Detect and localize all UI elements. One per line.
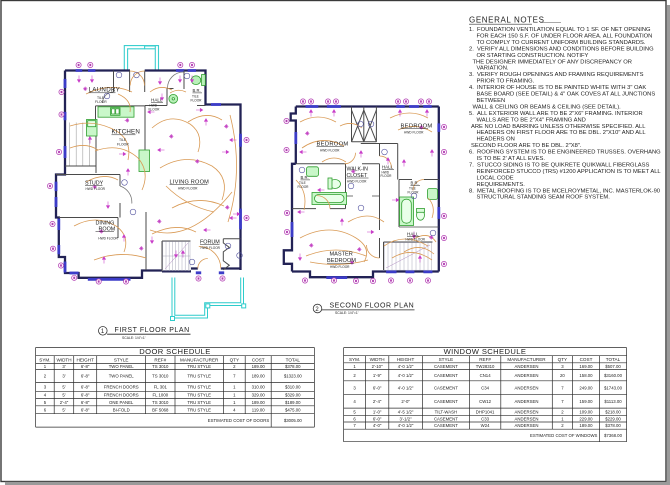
- svg-text:HWD FLOOR: HWD FLOOR: [320, 148, 340, 152]
- svg-text:REQUIREMENTS.: REQUIREMENTS.: [477, 182, 526, 188]
- svg-text:CASEMENT: CASEMENT: [434, 423, 458, 428]
- svg-text:ANDERSEN: ANDERSEN: [515, 364, 539, 369]
- svg-text:2'-4": 2'-4": [373, 399, 382, 404]
- svg-text:FL 301: FL 301: [154, 385, 168, 390]
- svg-text:TO COMPLY TO CURRENT UNIFORM B: TO COMPLY TO CURRENT UNIFORM BUILDING ST…: [477, 40, 646, 46]
- svg-text:WALLS ARE TO BE 2"X4" FRAMING: WALLS ARE TO BE 2"X4" FRAMING AND: [477, 117, 586, 123]
- svg-text:158.00: 158.00: [579, 373, 593, 378]
- svg-text:SYM.: SYM.: [39, 357, 50, 362]
- svg-text:DOOR SCHEDULE: DOOR SCHEDULE: [139, 347, 210, 356]
- svg-text:B.R.: B.R.: [411, 181, 419, 186]
- svg-text:HWD FLOOR: HWD FLOOR: [98, 237, 118, 241]
- svg-text:$1113.00: $1113.00: [604, 399, 622, 404]
- svg-text:KITCHEN: KITCHEN: [112, 129, 141, 136]
- svg-text:3'-1/2": 3'-1/2": [400, 417, 413, 422]
- svg-text:CN14: CN14: [480, 373, 492, 378]
- svg-text:20: 20: [560, 373, 565, 378]
- svg-text:310.00: 310.00: [252, 385, 266, 390]
- svg-text:HWD FLOOR: HWD FLOOR: [406, 238, 426, 242]
- svg-text:3. VERIFY ROUGH OPENINGS AND: 3. VERIFY ROUGH OPENINGS AND FRAMING REQ…: [469, 72, 644, 78]
- svg-text:HALL: HALL: [407, 232, 419, 237]
- svg-text:FRENCH DOORS: FRENCH DOORS: [104, 385, 139, 390]
- svg-text:W24: W24: [481, 423, 490, 428]
- svg-text:2'-0": 2'-0": [401, 399, 410, 404]
- svg-text:HEIGHT: HEIGHT: [77, 357, 95, 362]
- svg-text:REF#: REF#: [154, 357, 166, 362]
- svg-text:WINDOW SCHEDULE: WINDOW SCHEDULE: [444, 347, 527, 356]
- svg-text:IS TO BE 2' AT ALL EVES.: IS TO BE 2' AT ALL EVES.: [477, 156, 546, 162]
- svg-text:7. STUCCO SIDING IS TO BE QUI: 7. STUCCO SIDING IS TO BE QUIKRETE QUIKW…: [469, 162, 650, 168]
- svg-text:TILT-WASH: TILT-WASH: [435, 410, 457, 415]
- svg-text:TW28310: TW28310: [476, 364, 495, 369]
- svg-text:TILE: TILE: [119, 138, 127, 142]
- svg-text:$475.00: $475.00: [285, 407, 301, 412]
- svg-text:6'-8": 6'-8": [81, 407, 90, 412]
- svg-text:5. ALL EXTERIOR WALL ARE TO B: 5. ALL EXTERIOR WALL ARE TO BE 2"X6" FRA…: [469, 111, 643, 117]
- svg-text:BETWEEN: BETWEEN: [477, 98, 506, 104]
- svg-text:HWD FLOOR: HWD FLOOR: [404, 130, 424, 134]
- svg-text:LOCAL CODE: LOCAL CODE: [477, 175, 514, 181]
- svg-text:PRIOR TO FRAMING.: PRIOR TO FRAMING.: [477, 79, 535, 85]
- svg-text:6'-8": 6'-8": [81, 393, 90, 398]
- svg-text:TS 3010: TS 3010: [152, 400, 169, 405]
- svg-text:LAUNDRY: LAUNDRY: [89, 87, 121, 94]
- svg-text:109.00: 109.00: [579, 410, 593, 415]
- svg-text:THE DESIGNER IMMEDIATELY OF AN: THE DESIGNER IMMEDIATELY OF ANY DISCREPA…: [473, 59, 632, 65]
- svg-text:SECOND FLOOR ARE TO BE DBL. 2": SECOND FLOOR ARE TO BE DBL. 2"X8".: [471, 143, 582, 149]
- svg-text:TOTAL: TOTAL: [286, 357, 301, 362]
- svg-text:TRU STYLE: TRU STYLE: [187, 374, 211, 379]
- svg-text:VARIATION.: VARIATION.: [477, 66, 509, 72]
- svg-text:$378.00: $378.00: [285, 364, 301, 369]
- svg-text:HWD FLOOR: HWD FLOOR: [330, 265, 350, 269]
- svg-text:HEADERS ON: HEADERS ON: [477, 137, 515, 143]
- svg-text:FIRST FLOOR PLAN: FIRST FLOOR PLAN: [115, 327, 190, 334]
- svg-text:TRU STYLE: TRU STYLE: [187, 400, 211, 405]
- svg-text:WIDTH: WIDTH: [56, 357, 71, 362]
- svg-text:BASE BOARD (SEE DETAIL) & 4" O: BASE BOARD (SEE DETAIL) & 4" OAK COVES A…: [477, 92, 656, 98]
- svg-text:6. ROOFING SYSTEM IS TO BE EN: 6. ROOFING SYSTEM IS TO BE ENGINEERED TR…: [469, 150, 661, 156]
- svg-text:TS 3010: TS 3010: [152, 374, 169, 379]
- svg-text:4'-0 1/2": 4'-0 1/2": [398, 373, 414, 378]
- svg-text:TRU STYLE: TRU STYLE: [187, 407, 211, 412]
- svg-text:FLOOR: FLOOR: [117, 143, 129, 147]
- svg-text:FLOOR: FLOOR: [298, 185, 310, 189]
- svg-text:3': 3': [62, 364, 65, 369]
- svg-text:329.00: 329.00: [252, 393, 266, 398]
- svg-text:BF 5068: BF 5068: [152, 407, 169, 412]
- svg-text:6'-0": 6'-0": [373, 417, 382, 422]
- svg-text:HEIGHT: HEIGHT: [397, 357, 415, 362]
- svg-text:169.00: 169.00: [579, 364, 593, 369]
- svg-text:ANDERSEN: ANDERSEN: [515, 399, 539, 404]
- svg-text:TS 3010: TS 3010: [152, 364, 169, 369]
- svg-text:$310.00: $310.00: [285, 385, 301, 390]
- svg-text:TRU STYLE: TRU STYLE: [187, 393, 211, 398]
- svg-text:ANDERSEN: ANDERSEN: [515, 410, 539, 415]
- svg-text:FL 1000: FL 1000: [152, 393, 168, 398]
- svg-text:HALL: HALL: [151, 98, 163, 103]
- svg-text:$378.00: $378.00: [605, 423, 621, 428]
- svg-text:FRENCH DOORS: FRENCH DOORS: [104, 393, 139, 398]
- svg-text:CW12: CW12: [479, 399, 492, 404]
- svg-text:WALK-IN: WALK-IN: [347, 167, 369, 173]
- svg-text:ANDERSEN: ANDERSEN: [515, 385, 539, 390]
- svg-text:2. VERIFY ALL DIMENSIONS AND: 2. VERIFY ALL DIMENSIONS AND CONDITIONS …: [469, 46, 654, 52]
- svg-text:CASEMENT: CASEMENT: [434, 417, 458, 422]
- svg-text:STYLE: STYLE: [439, 357, 454, 362]
- svg-text:1. FOUNDATION VENTILATION EQU: 1. FOUNDATION VENTILATION EQUAL TO 1 SF.…: [469, 27, 651, 33]
- svg-text:$7368.00: $7368.00: [604, 433, 623, 438]
- svg-text:5': 5': [62, 385, 65, 390]
- svg-text:$229.00: $229.00: [605, 417, 621, 422]
- svg-text:6'-8": 6'-8": [81, 364, 90, 369]
- svg-text:QTY: QTY: [558, 357, 567, 362]
- svg-text:SCALE: 1/4"=1': SCALE: 1/4"=1': [122, 336, 146, 340]
- svg-text:B.R.: B.R.: [193, 88, 201, 93]
- svg-text:FLOOR: FLOOR: [191, 99, 203, 103]
- svg-text:6'-8": 6'-8": [81, 385, 90, 390]
- svg-text:$3160.00: $3160.00: [604, 373, 623, 378]
- svg-text:GENERAL NOTES: GENERAL NOTES: [469, 16, 545, 25]
- svg-text:$507.00: $507.00: [605, 364, 621, 369]
- svg-text:4'-5 1/2": 4'-5 1/2": [398, 410, 414, 415]
- svg-text:4. INTERIOR OF HOUSE IS TO BE: 4. INTERIOR OF HOUSE IS TO BE PAINTED WH…: [469, 85, 646, 91]
- svg-text:4'-0": 4'-0": [373, 423, 382, 428]
- svg-text:FLOOR: FLOOR: [149, 107, 161, 111]
- svg-text:REINFORCED STUCCO (TRS) #1200: REINFORCED STUCCO (TRS) #1200 APPLICATIO…: [477, 169, 662, 175]
- svg-text:8. METAL ROOFING IS TO BE MCE: 8. METAL ROOFING IS TO BE MCELROYMETAL, …: [469, 188, 660, 194]
- svg-text:CASEMENT: CASEMENT: [434, 399, 458, 404]
- svg-text:CASEMENT: CASEMENT: [434, 364, 458, 369]
- svg-text:STYLE: STYLE: [114, 357, 129, 362]
- svg-text:FLOOR: FLOOR: [381, 174, 393, 178]
- svg-text:6'-8": 6'-8": [81, 400, 90, 405]
- svg-text:4'-0 1/2": 4'-0 1/2": [398, 423, 414, 428]
- svg-text:HWD FLOOR: HWD FLOOR: [201, 246, 221, 250]
- svg-text:HWD FLOOR: HWD FLOOR: [86, 187, 106, 191]
- svg-text:6'-8": 6'-8": [81, 374, 90, 379]
- svg-text:ANDERSEN: ANDERSEN: [515, 423, 539, 428]
- svg-text:TWO PANEL: TWO PANEL: [109, 374, 135, 379]
- svg-text:ANDERSEN: ANDERSEN: [515, 373, 539, 378]
- svg-text:HALL: HALL: [382, 165, 394, 170]
- svg-text:SCALE: 1/4"=1': SCALE: 1/4"=1': [335, 311, 359, 315]
- svg-text:3': 3': [62, 374, 65, 379]
- svg-text:COST: COST: [252, 357, 265, 362]
- svg-text:HWD FLOOR: HWD FLOOR: [347, 179, 367, 183]
- svg-text:SECOND FLOOR PLAN: SECOND FLOOR PLAN: [330, 302, 415, 309]
- svg-text:159.00: 159.00: [579, 399, 593, 404]
- svg-text:229.00: 229.00: [579, 417, 593, 422]
- svg-text:189.00: 189.00: [252, 374, 266, 379]
- svg-text:$3005.00: $3005.00: [284, 418, 303, 423]
- svg-text:TRU STYLE: TRU STYLE: [187, 364, 211, 369]
- svg-text:FLOOR: FLOOR: [408, 191, 420, 195]
- svg-text:HWD FLOOR: HWD FLOOR: [178, 186, 198, 190]
- svg-text:249.00: 249.00: [579, 385, 593, 390]
- svg-text:4'-0 1/2": 4'-0 1/2": [398, 385, 414, 390]
- svg-text:C34: C34: [481, 385, 489, 390]
- svg-text:4'-0 1/2": 4'-0 1/2": [398, 364, 414, 369]
- svg-text:WIDTH: WIDTH: [370, 357, 385, 362]
- svg-text:REF#: REF#: [479, 357, 491, 362]
- svg-text:TOTAL: TOTAL: [606, 357, 621, 362]
- svg-text:FOR EACH 150 S.F. OF UNDER FLO: FOR EACH 150 S.F. OF UNDER FLOOR AREA. A…: [477, 33, 653, 39]
- svg-text:$329.00: $329.00: [285, 393, 301, 398]
- svg-text:ANDERSEN: ANDERSEN: [515, 417, 539, 422]
- svg-text:ONE PANEL: ONE PANEL: [109, 400, 134, 405]
- svg-text:MASTER: MASTER: [330, 252, 353, 258]
- svg-text:C33: C33: [481, 417, 489, 422]
- svg-text:5': 5': [62, 407, 65, 412]
- svg-text:2'-4": 2'-4": [60, 400, 69, 405]
- svg-text:B.R.: B.R.: [301, 175, 309, 180]
- svg-text:2'-10": 2'-10": [372, 364, 383, 369]
- svg-text:$218.00: $218.00: [605, 410, 621, 415]
- svg-text:COST: COST: [580, 357, 593, 362]
- svg-text:ARE NO LOAD BARRING UNLESS OTH: ARE NO LOAD BARRING UNLESS OTHERWISE SPE…: [471, 124, 646, 130]
- svg-text:FLOOR: FLOOR: [95, 100, 107, 104]
- svg-text:OR STARTING CONSTRUCTION. NOTI: OR STARTING CONSTRUCTION. NOTIFY: [477, 53, 589, 59]
- svg-text:DHP1041: DHP1041: [476, 410, 495, 415]
- svg-text:189.00: 189.00: [252, 364, 266, 369]
- svg-text:1'-9": 1'-9": [373, 373, 382, 378]
- svg-text:$189.00: $189.00: [285, 400, 301, 405]
- svg-text:HEADERS ON FIRST FLOOR ARE TO: HEADERS ON FIRST FLOOR ARE TO BE DBL. 2"…: [477, 130, 647, 136]
- svg-text:TWO PANEL: TWO PANEL: [109, 364, 135, 369]
- svg-text:MANUFACTURER: MANUFACTURER: [180, 357, 219, 362]
- svg-text:TRU STYLE: TRU STYLE: [187, 385, 211, 390]
- svg-text:119.00: 119.00: [252, 407, 265, 412]
- svg-text:189.00: 189.00: [579, 423, 593, 428]
- svg-text:MANUFACTURER: MANUFACTURER: [507, 357, 546, 362]
- svg-text:ESTIMATED COST OF DOORS: ESTIMATED COST OF DOORS: [208, 418, 270, 423]
- svg-text:1'-0": 1'-0": [373, 410, 382, 415]
- svg-text:BI-FOLD: BI-FOLD: [113, 407, 130, 412]
- svg-text:STRUCTURAL STANDING SEAM ROOF: STRUCTURAL STANDING SEAM ROOF SYSTEM.: [477, 195, 611, 201]
- svg-text:ESTIMATED COST OF WINDOWS: ESTIMATED COST OF WINDOWS: [530, 433, 598, 438]
- svg-text:WALL & CEILING OR BEAMS & CEIL: WALL & CEILING OR BEAMS & CEILING (SEE D…: [473, 104, 622, 110]
- svg-text:189.00: 189.00: [252, 400, 266, 405]
- svg-text:CASEMENT: CASEMENT: [434, 373, 458, 378]
- svg-text:$1323.00: $1323.00: [284, 374, 303, 379]
- svg-text:SYM.: SYM.: [349, 357, 360, 362]
- svg-text:6'-0": 6'-0": [373, 385, 382, 390]
- svg-text:CASEMENT: CASEMENT: [434, 385, 458, 390]
- svg-text:5': 5': [62, 393, 65, 398]
- svg-text:$1743.00: $1743.00: [604, 385, 623, 390]
- svg-text:QTY: QTY: [230, 357, 239, 362]
